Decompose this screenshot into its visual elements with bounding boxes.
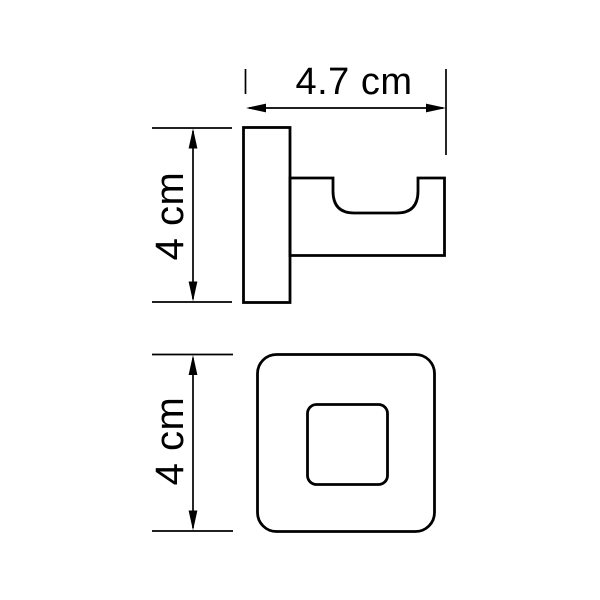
front-plate-outline	[258, 355, 435, 532]
front-hook-arm-outline	[308, 405, 388, 485]
technical-drawing-canvas: 4.7 cm 4 cm 4 cm	[0, 0, 600, 600]
up-arrowhead-icon	[189, 355, 198, 375]
front-height-dimension-label: 4 cm	[150, 397, 190, 486]
width-dimension-label: 4.7 cm	[295, 63, 412, 101]
up-arrowhead-icon	[189, 129, 198, 149]
wall-plate-outline	[244, 128, 291, 303]
hook-profile-outline	[290, 178, 445, 256]
down-arrowhead-icon	[189, 282, 198, 302]
left-arrowhead-icon	[246, 104, 266, 113]
front-view	[258, 355, 435, 532]
down-arrowhead-icon	[189, 511, 198, 531]
right-arrowhead-icon	[426, 104, 446, 113]
side-height-dimension-label: 4 cm	[150, 172, 190, 261]
side-view	[244, 128, 445, 303]
